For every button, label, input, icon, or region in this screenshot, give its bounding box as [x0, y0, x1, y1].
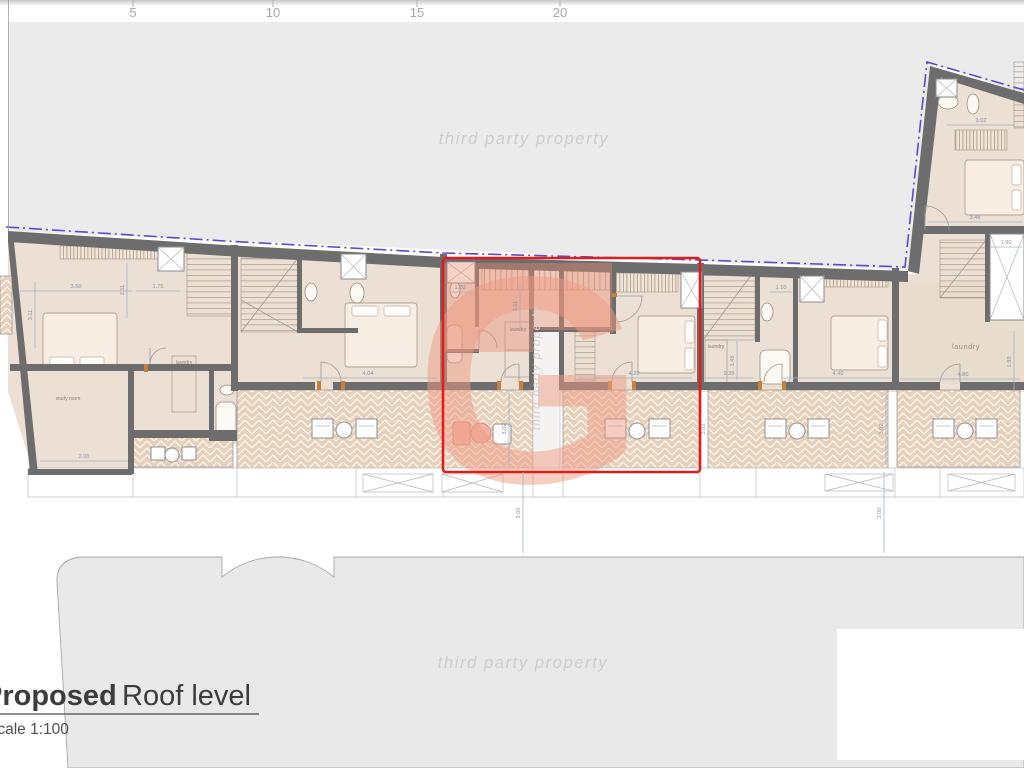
scale-label: Scale 1:100: [0, 721, 69, 738]
dimension-label: 2.11: [120, 285, 126, 295]
bed-symbol: [345, 303, 417, 367]
dimension-label: 3.00: [516, 508, 522, 519]
bed-symbol: [831, 316, 888, 370]
ruler-mark: 15: [410, 5, 424, 20]
room-label-laundry: laundry: [708, 344, 725, 350]
drawing-title-emphasis: Proposed: [0, 680, 117, 712]
floor-plan-screenshot: G 3.60 1.75 1.20 4.04 4.28 4.40 2.35 4.8…: [0, 0, 1024, 768]
room-label-laundry: laundry: [510, 327, 527, 333]
dimension-label: 1.10: [776, 285, 787, 291]
room-label-laundry: laundry: [176, 360, 193, 366]
dimension-label: 3.11: [28, 310, 34, 320]
floor-plan-canvas: G 3.60 1.75 1.20 4.04 4.28 4.40 2.35 4.8…: [0, 0, 1024, 768]
room-label-study: study room: [56, 396, 81, 402]
watermark-text-vertical: third party property: [529, 306, 543, 431]
toilet-symbol: [761, 303, 773, 321]
dimension-label: 4.80: [958, 372, 969, 378]
dimension-label: 1.90: [1001, 240, 1012, 246]
planter-strip: [0, 276, 12, 334]
bed-symbol: [965, 160, 1024, 215]
dimension-label: 1.20: [455, 285, 466, 291]
watermark-text-top: third party property: [439, 130, 610, 148]
dimension-label: 3.02: [879, 424, 885, 435]
toilet-symbol: [350, 283, 364, 303]
dimension-label: 4.28: [629, 371, 640, 377]
street-white-panel: [837, 629, 1024, 760]
dimension-label: 4.40: [833, 371, 844, 377]
dimension-label: 2.00: [79, 454, 90, 460]
drawing-title: Roof level: [122, 680, 251, 712]
ruler-mark: 10: [266, 5, 280, 20]
ruler-mark: 20: [553, 5, 567, 20]
dimension-label: 3.60: [71, 284, 82, 290]
dimension-label: 1.45: [730, 356, 736, 367]
stair-symbol: [187, 250, 235, 316]
toilet-symbol: [967, 94, 979, 114]
dimension-label: 3.48: [970, 215, 981, 221]
dimension-label: 3.02: [502, 424, 508, 435]
dimension-label: 1.75: [153, 284, 164, 290]
dimension-label: 4.04: [363, 371, 374, 377]
dimension-label: 3.02: [976, 118, 987, 124]
page-edge-shadow: [0, 0, 1024, 6]
room-label-laundry: laundry: [952, 342, 980, 351]
ruler-mark: 5: [129, 5, 136, 20]
wardrobe-symbol: [955, 130, 1007, 150]
seating-group: [151, 447, 196, 462]
dimension-label: 3.02: [701, 424, 707, 435]
dimension-label: 2.35: [724, 371, 735, 377]
bed-symbol: [638, 316, 695, 373]
dimension-label: 1.93: [1007, 357, 1013, 368]
bed-symbol: [43, 313, 117, 370]
sink-symbol: [305, 283, 317, 301]
dimension-label: 1.11: [513, 301, 519, 311]
seating-group: [312, 419, 377, 438]
watermark-text-bottom: third party property: [438, 654, 609, 672]
dimension-label: 3.00: [877, 508, 883, 519]
